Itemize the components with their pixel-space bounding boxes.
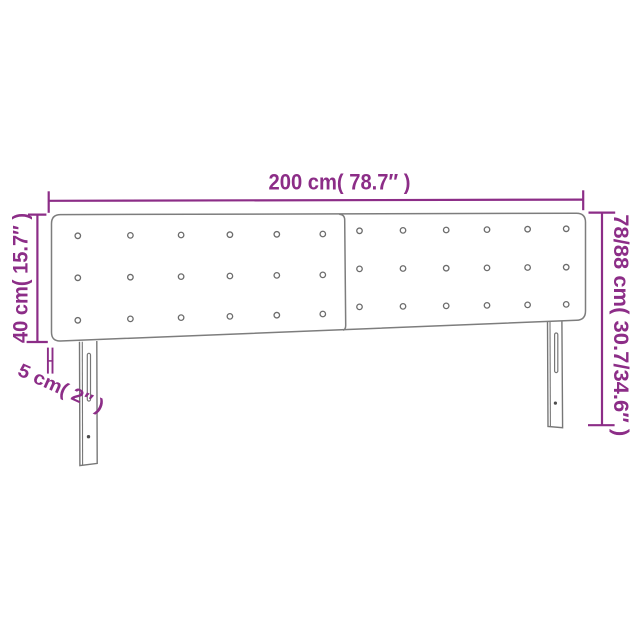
svg-text:200 cm( 78.7″ ): 200 cm( 78.7″ ) xyxy=(269,169,411,194)
svg-text:40 cm( 15.7″ ): 40 cm( 15.7″ ) xyxy=(8,213,32,343)
svg-text:78/88 cm( 30.7/34.6″ ): 78/88 cm( 30.7/34.6″ ) xyxy=(609,214,632,436)
